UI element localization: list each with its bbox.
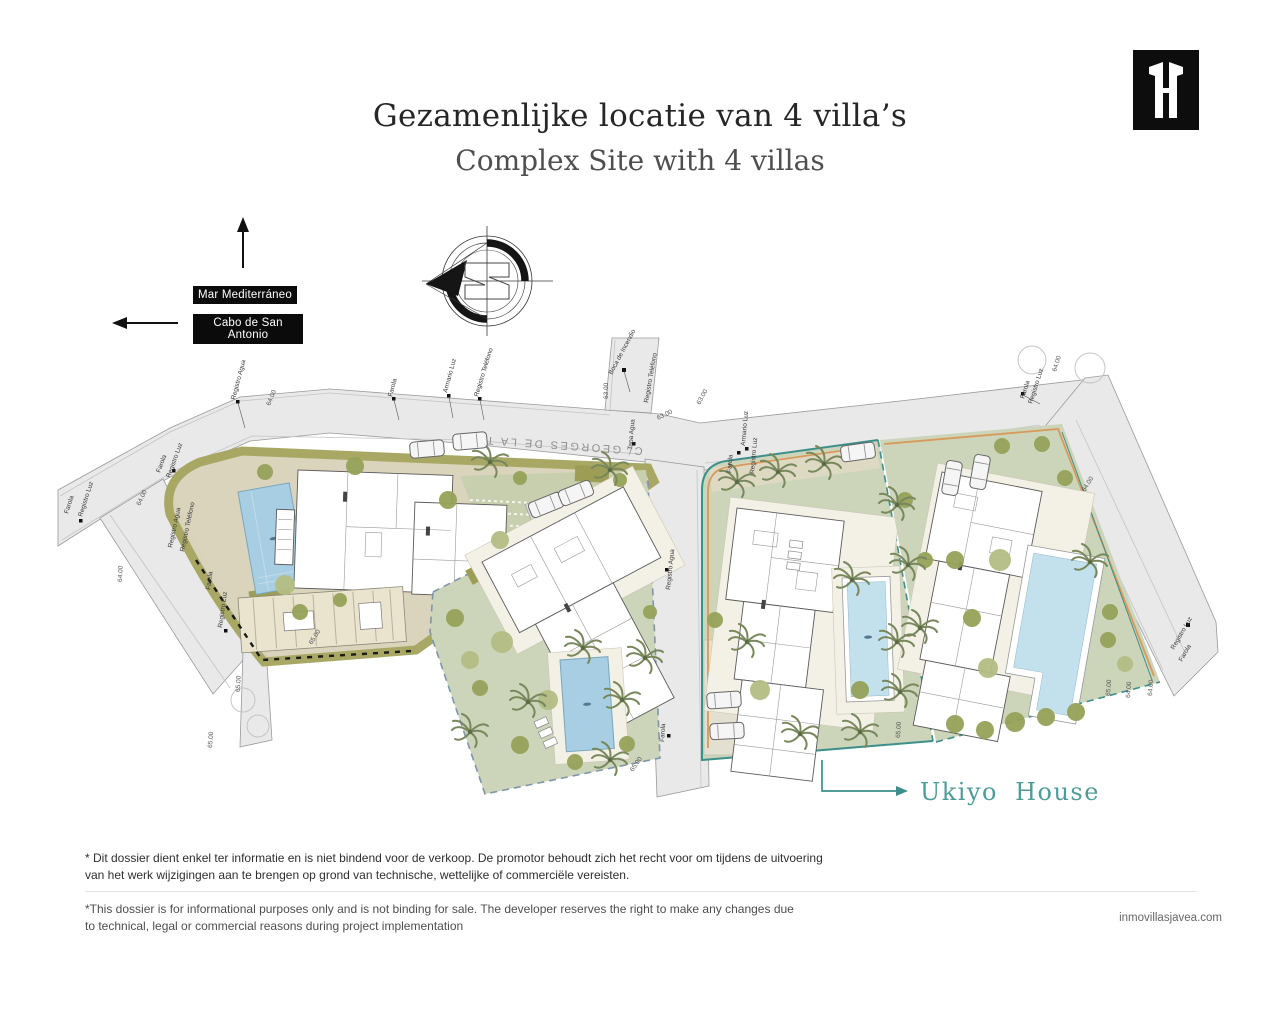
villa-1-pergola [238, 586, 406, 652]
utility-label: Registro Teléfono [473, 347, 495, 398]
dimension-label: 65.00 [1105, 679, 1113, 696]
compass-arc-ne [487, 243, 525, 281]
utility-label: Farola [659, 723, 667, 742]
dimension-label: 63.00 [696, 388, 710, 406]
utility-label: Armario Luz [442, 358, 458, 394]
sea-direction-badge: Mar Mediterráneo [193, 286, 297, 304]
dimension-label: 64.00 [117, 565, 125, 582]
brand-logo [1133, 50, 1199, 130]
site-plan: C/ GEORGES DE LA TOUR [0, 325, 1280, 840]
dimension-label: 64.00 [1051, 355, 1063, 373]
footer-divider [85, 891, 1197, 892]
dimension-label: 64.00 [1147, 679, 1155, 696]
ukiyo-callout: Ukiyo House [822, 760, 1100, 806]
dimension-label: 65.00 [207, 731, 215, 748]
compass-needle [426, 260, 467, 296]
disclaimer-english-line1: *This dossier is for informational purpo… [85, 901, 794, 918]
disclaimer-dutch-line1: * Dit dossier dient enkel ter informatie… [85, 850, 823, 867]
dimension-label: 65.00 [895, 721, 903, 738]
page-title-dutch: Gezamenlijke locatie van 4 villa’s [0, 98, 1280, 134]
disclaimer-dutch-line2: van het werk wijzigingen aan te brengen … [85, 867, 823, 884]
north-arrow [237, 217, 249, 268]
dimension-label: 63.00 [603, 382, 610, 399]
logo-dash [1163, 88, 1169, 93]
disclaimer-english: *This dossier is for informational purpo… [85, 901, 794, 936]
ukiyo-callout-line [822, 760, 896, 791]
disclaimer-english-line2: to technical, legal or commercial reason… [85, 918, 794, 935]
utility-label: Registro Agua [230, 359, 247, 401]
dimension-label: 65.00 [235, 675, 243, 692]
disclaimer-dutch: * Dit dossier dient enkel ter informatie… [85, 850, 823, 885]
page-title-english: Complex Site with 4 villas [0, 144, 1280, 177]
website-link[interactable]: inmovillasjavea.com [1119, 912, 1222, 924]
dimension-label: 64.00 [1125, 681, 1133, 698]
ukiyo-house-label: Ukiyo House [920, 778, 1100, 806]
ukiyo-callout-arrowhead [896, 786, 908, 796]
